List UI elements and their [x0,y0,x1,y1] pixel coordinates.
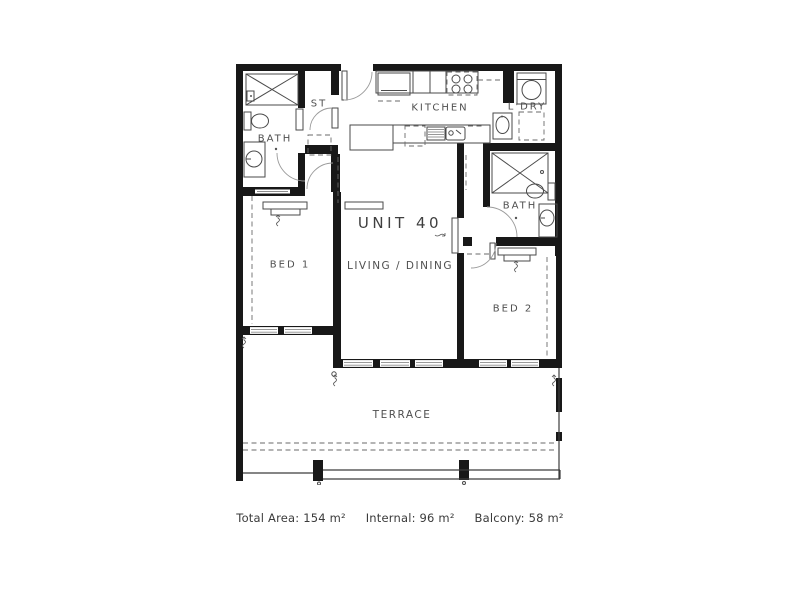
floor-waste-icon [275,148,277,150]
total-area-text: Total Area: 154 m² [236,511,346,525]
room-label-bed2: BED 2 [493,304,533,315]
room-label-bed1: BED 1 [270,260,310,271]
floor-plan: BATH ST KITCHEN L'DRY BATH UNIT 40 LIVIN… [230,60,570,485]
room-label-storage: ST [311,99,327,110]
room-label-kitchen: KITCHEN [411,103,468,114]
unit-title: UNIT 40 [358,214,442,232]
laundry-tub-icon [493,113,512,139]
kitchen-bench [376,71,478,93]
room-label-bath2: BATH [503,201,538,212]
shower-icon [492,153,548,193]
dryer-icon [519,112,544,140]
room-label-bath1: BATH [258,134,293,145]
fridge-icon [378,73,410,95]
toilet-icon [527,183,556,200]
floor-waste-icon [515,217,517,219]
washing-machine-icon [517,73,546,104]
basin-icon [539,204,557,237]
shower-icon [246,74,298,105]
floor-plan-page: BATH ST KITCHEN L'DRY BATH UNIT 40 LIVIN… [0,0,800,600]
cooktop-icon [447,72,477,95]
internal-area-text: Internal: 96 m² [366,511,455,525]
area-caption: Total Area: 154 m² Internal: 96 m² Balco… [0,511,800,525]
toilet-icon [244,112,269,130]
room-label-living: LIVING / DINING [347,260,453,272]
balustrade-icon [243,368,560,485]
room-label-terrace: TERRACE [373,409,432,421]
room-label-laundry: L'DRY [508,102,546,113]
balcony-area-text: Balcony: 58 m² [475,511,564,525]
basin-icon [244,142,265,177]
floor-plan-drawing [230,60,570,485]
